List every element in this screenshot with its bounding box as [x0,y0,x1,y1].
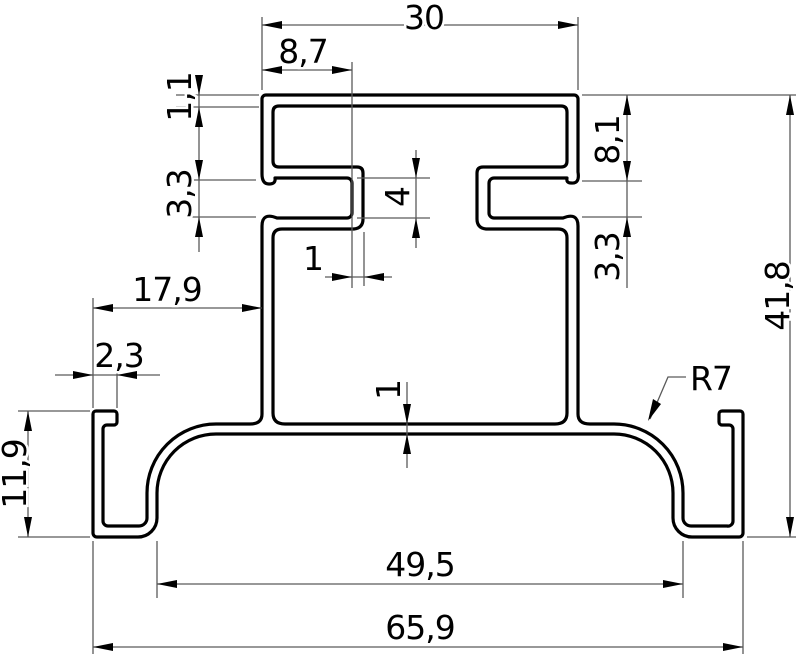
dim-hook-lip-width-label: 2,3 [94,336,143,375]
dim-top-wall-thickness-label: 1,1 [160,72,199,121]
dim-hook-height-label: 11,9 [0,439,34,508]
dim-slot-depth-label: 8,7 [278,32,327,71]
dim-head-side-height-label: 8,1 [588,115,627,164]
dim-top-width-label: 30 [404,0,444,37]
dim-slot-inner-height-label: 4 [378,187,417,207]
dim-slot-opening-left-label: 3,3 [160,169,199,218]
dim-slot-end-wall-label: 1 [303,239,323,278]
radius-annotation-label: R7 [690,359,732,398]
dim-total-height-label: 41,8 [758,261,797,330]
dim-flange-thickness-label: 1 [369,380,408,400]
dim-flange-overhang-label: 17,9 [132,270,201,309]
dim-slot-opening-right-label: 3,3 [588,232,627,281]
dim-base-span-label: 49,5 [385,545,454,584]
technical-drawing-canvas: 30 8,7 1,1 3,3 4 1 8,1 3,3 41,8 17,9 2,3… [0,0,800,659]
dim-total-width-label: 65,9 [385,608,454,647]
profile-drawing: 30 8,7 1,1 3,3 4 1 8,1 3,3 41,8 17,9 2,3… [0,0,800,659]
